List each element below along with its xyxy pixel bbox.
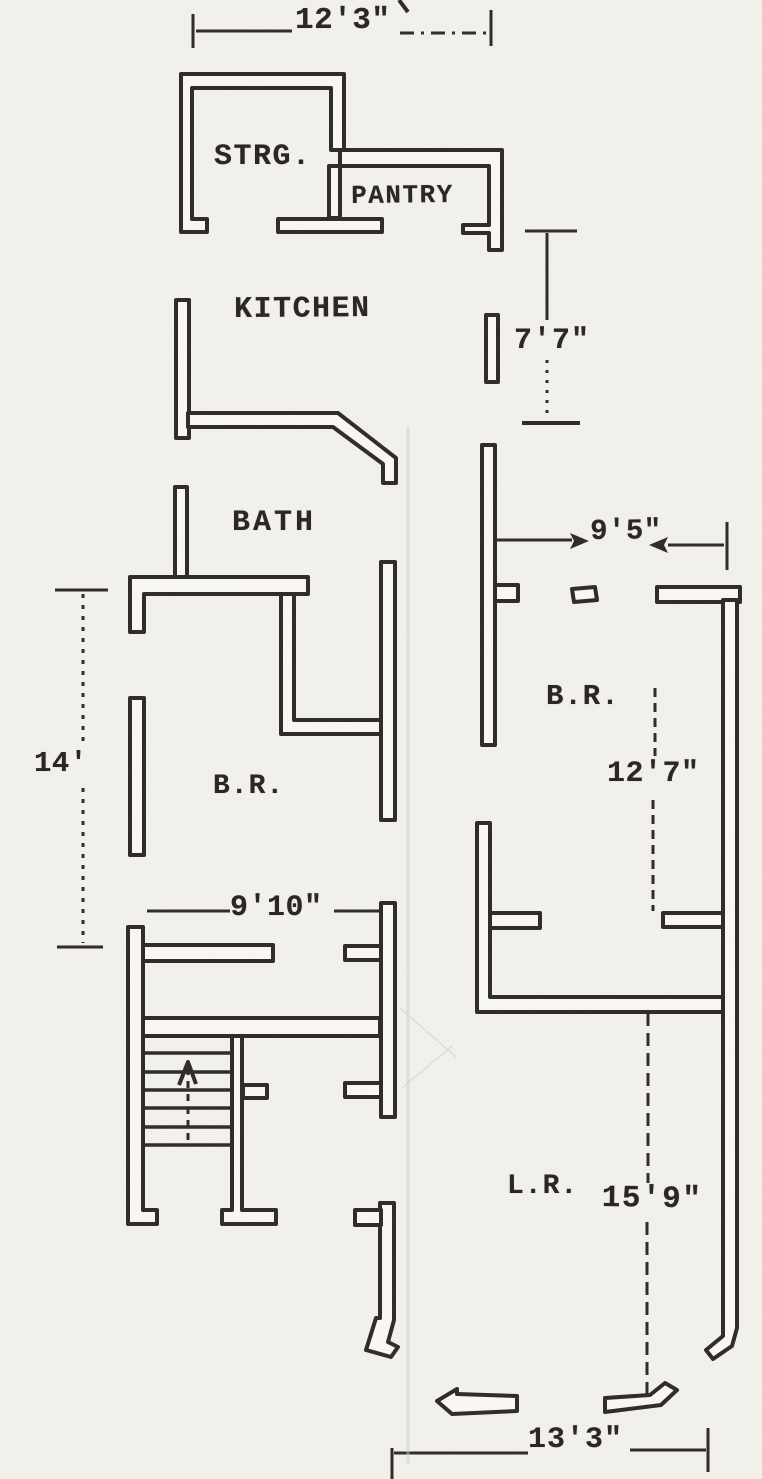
- room-label-bath: BATH: [232, 508, 316, 538]
- dimension-label-bottom-width: 13'3": [528, 1425, 623, 1455]
- dimension-label-kitchen-height: 7'7": [514, 326, 590, 356]
- room-label-bedroom-right: B.R.: [546, 682, 620, 711]
- dimension-label-bedroom-right-height: 12'7": [607, 759, 700, 789]
- dimension-label-bedroom-left-height: 14': [34, 749, 88, 778]
- floor-plan-svg: [0, 0, 762, 1479]
- dimension-label-top-width: 12'3": [295, 5, 391, 36]
- dimension-label-hall-width: 9'10": [230, 893, 323, 923]
- floor-plan-page: STRG. PANTRY KITCHEN BATH B.R. B.R. L.R.…: [0, 0, 762, 1479]
- room-label-bedroom-left: B.R.: [213, 773, 284, 801]
- dimension-label-bedroom-right-width: 9'5": [590, 516, 662, 546]
- room-label-storage: STRG.: [214, 142, 312, 172]
- dimension-label-living-room-height: 15'9": [602, 1183, 703, 1215]
- room-label-living-room: L.R.: [507, 1173, 578, 1201]
- paper-grain-texture: [0, 0, 762, 1479]
- room-label-kitchen: KITCHEN: [234, 294, 371, 325]
- room-label-pantry: PANTRY: [351, 182, 454, 209]
